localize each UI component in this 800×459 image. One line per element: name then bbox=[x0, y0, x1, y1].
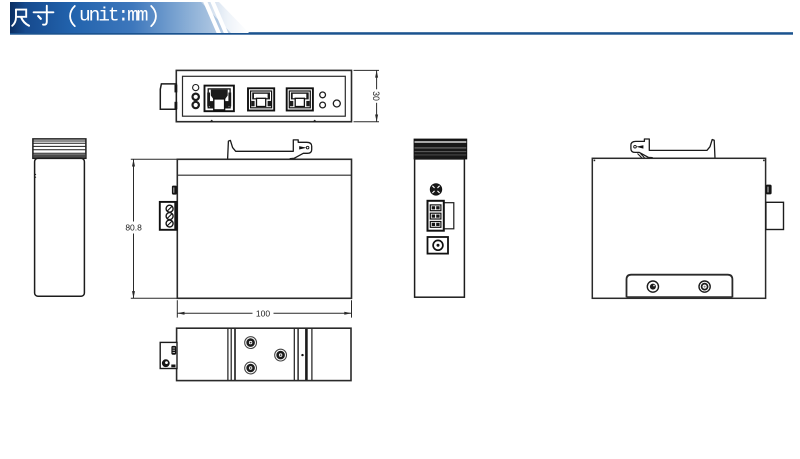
svg-text:80.8: 80.8 bbox=[125, 223, 142, 233]
svg-text:unit:mm: unit:mm bbox=[79, 5, 149, 27]
svg-text:100: 100 bbox=[256, 309, 270, 319]
svg-text:30: 30 bbox=[371, 91, 381, 101]
